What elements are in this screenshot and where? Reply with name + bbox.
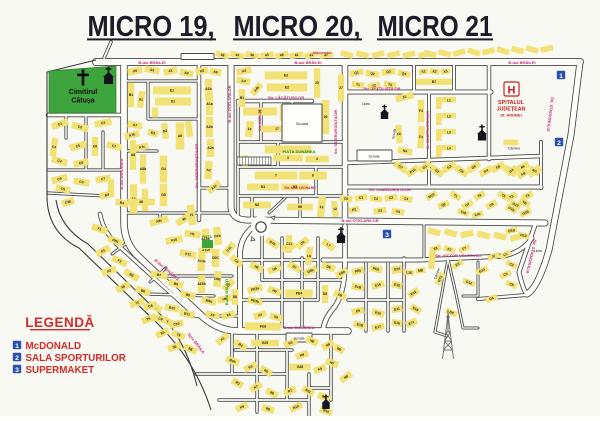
svg-text:A5: A5 (200, 69, 205, 74)
svg-text:A4: A4 (241, 79, 246, 84)
svg-text:A1a: A1a (206, 102, 212, 106)
svg-text:A3: A3 (149, 68, 154, 73)
svg-text:B-dul BRĂILEI: B-dul BRĂILEI (294, 60, 321, 65)
svg-text:8: 8 (312, 174, 314, 178)
svg-text:D1b: D1b (214, 234, 221, 239)
svg-text:L16: L16 (406, 270, 412, 275)
svg-text:McDONALD: McDONALD (26, 341, 82, 352)
svg-text:Str. VICTOR VÂLCOVICI: Str. VICTOR VÂLCOVICI (435, 253, 481, 258)
svg-text:1: 1 (559, 73, 563, 80)
svg-text:E2: E2 (285, 86, 289, 90)
svg-text:A2: A2 (206, 168, 211, 172)
svg-text:V2: V2 (378, 209, 383, 214)
svg-text:SUPERMAKET: SUPERMAKET (26, 365, 95, 376)
svg-text:A8: A8 (131, 153, 135, 157)
svg-text:26: 26 (324, 115, 328, 119)
svg-text:L3: L3 (447, 130, 451, 134)
svg-text:B-dul DUNĂREA: B-dul DUNĂREA (119, 158, 124, 189)
svg-text:L1: L1 (447, 98, 451, 102)
svg-text:PE8: PE8 (260, 325, 267, 329)
svg-text:25: 25 (315, 81, 319, 85)
svg-text:10: 10 (247, 127, 251, 131)
svg-text:Cătușa: Cătușa (71, 98, 94, 105)
svg-text:PIAȚA: PIAȚA (202, 235, 212, 239)
svg-text:Școala: Școala (294, 337, 305, 341)
svg-text:D8: D8 (323, 292, 327, 296)
svg-text:PIAȚA DUNĂREA: PIAȚA DUNĂREA (283, 149, 316, 154)
svg-text:C0: C0 (79, 180, 84, 185)
svg-text:G28: G28 (297, 365, 304, 369)
svg-text:B-dul BRĂILEI: B-dul BRĂILEI (138, 60, 165, 65)
svg-text:L2: L2 (447, 114, 451, 118)
svg-text:T1: T1 (356, 83, 361, 88)
svg-text:PE4: PE4 (296, 292, 303, 296)
svg-text:17: 17 (275, 127, 279, 131)
svg-text:F3: F3 (419, 135, 423, 139)
svg-text:X1: X1 (421, 69, 426, 74)
svg-text:C3: C3 (101, 121, 106, 126)
svg-text:D1: D1 (171, 100, 175, 104)
svg-text:A2a: A2a (207, 146, 213, 150)
svg-text:SALA SPORTURILOR: SALA SPORTURILOR (26, 353, 126, 364)
svg-text:Str. CONSTRUCTORILOR: Str. CONSTRUCTORILOR (426, 110, 430, 149)
svg-text:B-dul OȚELARILOR: B-dul OȚELARILOR (227, 85, 232, 122)
svg-text:Str. NAE LEONARD: Str. NAE LEONARD (284, 186, 316, 190)
svg-text:E3: E3 (284, 74, 288, 78)
svg-text:3: 3 (287, 156, 289, 160)
svg-text:Q2: Q2 (370, 71, 375, 76)
svg-text:B-dul OȚELARILOR: B-dul OȚELARILOR (341, 218, 378, 223)
svg-text:MICRO 19,: MICRO 19, (88, 11, 215, 43)
svg-text:F6: F6 (397, 132, 401, 136)
svg-text:G25: G25 (262, 341, 269, 345)
svg-text:2: 2 (557, 140, 561, 147)
svg-text:C3: C3 (389, 196, 394, 201)
svg-text:Str. ANZILOR: Str. ANZILOR (258, 109, 262, 131)
svg-text:G4: G4 (161, 167, 166, 171)
svg-text:MICRO 21: MICRO 21 (378, 11, 493, 43)
svg-text:Q3: Q3 (386, 70, 391, 75)
svg-text:E1: E1 (170, 89, 174, 93)
svg-text:D0E: D0E (214, 277, 222, 282)
svg-text:A13a: A13a (197, 259, 205, 264)
svg-text:C6: C6 (93, 145, 97, 149)
svg-text:D8: D8 (233, 295, 237, 299)
svg-text:4: 4 (316, 157, 318, 161)
svg-text:43: 43 (265, 53, 269, 58)
svg-text:Autoservice: Autoservice (313, 51, 332, 55)
svg-text:H6: H6 (298, 205, 302, 209)
svg-text:A8b: A8b (140, 167, 146, 171)
svg-text:X4: X4 (210, 313, 215, 318)
svg-text:H1: H1 (190, 232, 195, 237)
svg-text:B7: B7 (432, 80, 436, 84)
svg-text:3: 3 (385, 232, 389, 239)
svg-text:L4: L4 (447, 146, 451, 150)
svg-text:L6: L6 (307, 254, 311, 258)
svg-text:13: 13 (319, 205, 323, 209)
svg-text:Str. LĂCĂTUȘILOR: Str. LĂCĂTUȘILOR (268, 95, 304, 100)
svg-text:N1: N1 (261, 185, 265, 189)
svg-text:A1b: A1b (205, 87, 211, 91)
svg-text:A7: A7 (132, 123, 137, 128)
svg-text:F4: F4 (419, 109, 423, 113)
svg-text:7: 7 (275, 174, 277, 178)
svg-text:SPITALUL: SPITALUL (498, 100, 525, 106)
svg-text:C0: C0 (344, 197, 349, 202)
svg-text:3: 3 (15, 367, 19, 374)
svg-text:Cămine: Cămine (508, 147, 520, 151)
svg-text:Cimitirul: Cimitirul (69, 89, 97, 96)
svg-text:B1: B1 (240, 96, 244, 100)
svg-text:D2: D2 (163, 129, 168, 133)
svg-text:C4: C4 (403, 197, 408, 202)
svg-text:H: H (508, 85, 516, 97)
svg-text:D0C: D0C (212, 256, 219, 260)
svg-text:MICRO 20,: MICRO 20, (234, 11, 361, 43)
svg-text:Școala: Școala (369, 155, 380, 159)
svg-text:C4: C4 (52, 145, 57, 150)
svg-text:B-dul BRĂILEI: B-dul BRĂILEI (508, 60, 535, 65)
svg-text:A2b: A2b (206, 125, 212, 129)
svg-text:Str. SIDERURGIȘTILOR: Str. SIDERURGIȘTILOR (333, 110, 338, 155)
svg-text:75: 75 (189, 213, 193, 218)
svg-text:48: 48 (139, 200, 143, 204)
svg-text:C1: C1 (359, 195, 364, 200)
svg-text:V3: V3 (396, 210, 401, 215)
svg-text:C7: C7 (101, 177, 106, 182)
svg-text:12: 12 (333, 207, 337, 211)
svg-text:27: 27 (339, 86, 343, 90)
svg-text:G5: G5 (161, 193, 166, 197)
svg-text:61: 61 (139, 97, 143, 102)
svg-text:A6: A6 (178, 134, 182, 138)
svg-text:C2: C2 (374, 197, 379, 202)
svg-text:Sf. ANDREI: Sf. ANDREI (500, 113, 521, 118)
svg-text:C11: C11 (286, 242, 292, 246)
svg-text:B-dul DUNĂREA: B-dul DUNĂREA (283, 325, 314, 330)
svg-text:X2: X2 (432, 69, 437, 74)
svg-text:2: 2 (15, 355, 19, 362)
svg-text:B-dul GALAȚI: B-dul GALAȚI (224, 279, 229, 305)
svg-text:Liceu: Liceu (362, 102, 371, 106)
svg-text:1: 1 (15, 343, 19, 350)
svg-text:MB: MB (418, 268, 424, 273)
svg-text:Școala: Școala (296, 121, 309, 126)
svg-text:Str. LAMINORIȘTILOR: Str. LAMINORIȘTILOR (369, 187, 411, 192)
svg-text:X3: X3 (443, 69, 448, 74)
svg-text:Str. TEXTILIȘTILOR: Str. TEXTILIȘTILOR (363, 86, 400, 91)
svg-text:Str. SIDERURGIȘTILOR: Str. SIDERURGIȘTILOR (194, 144, 199, 189)
svg-text:B1: B1 (129, 93, 133, 97)
svg-text:LEGENDĂ: LEGENDĂ (25, 315, 95, 330)
svg-text:N2: N2 (255, 203, 259, 207)
svg-text:B7: B7 (156, 273, 161, 278)
svg-text:A15b: A15b (197, 282, 205, 286)
